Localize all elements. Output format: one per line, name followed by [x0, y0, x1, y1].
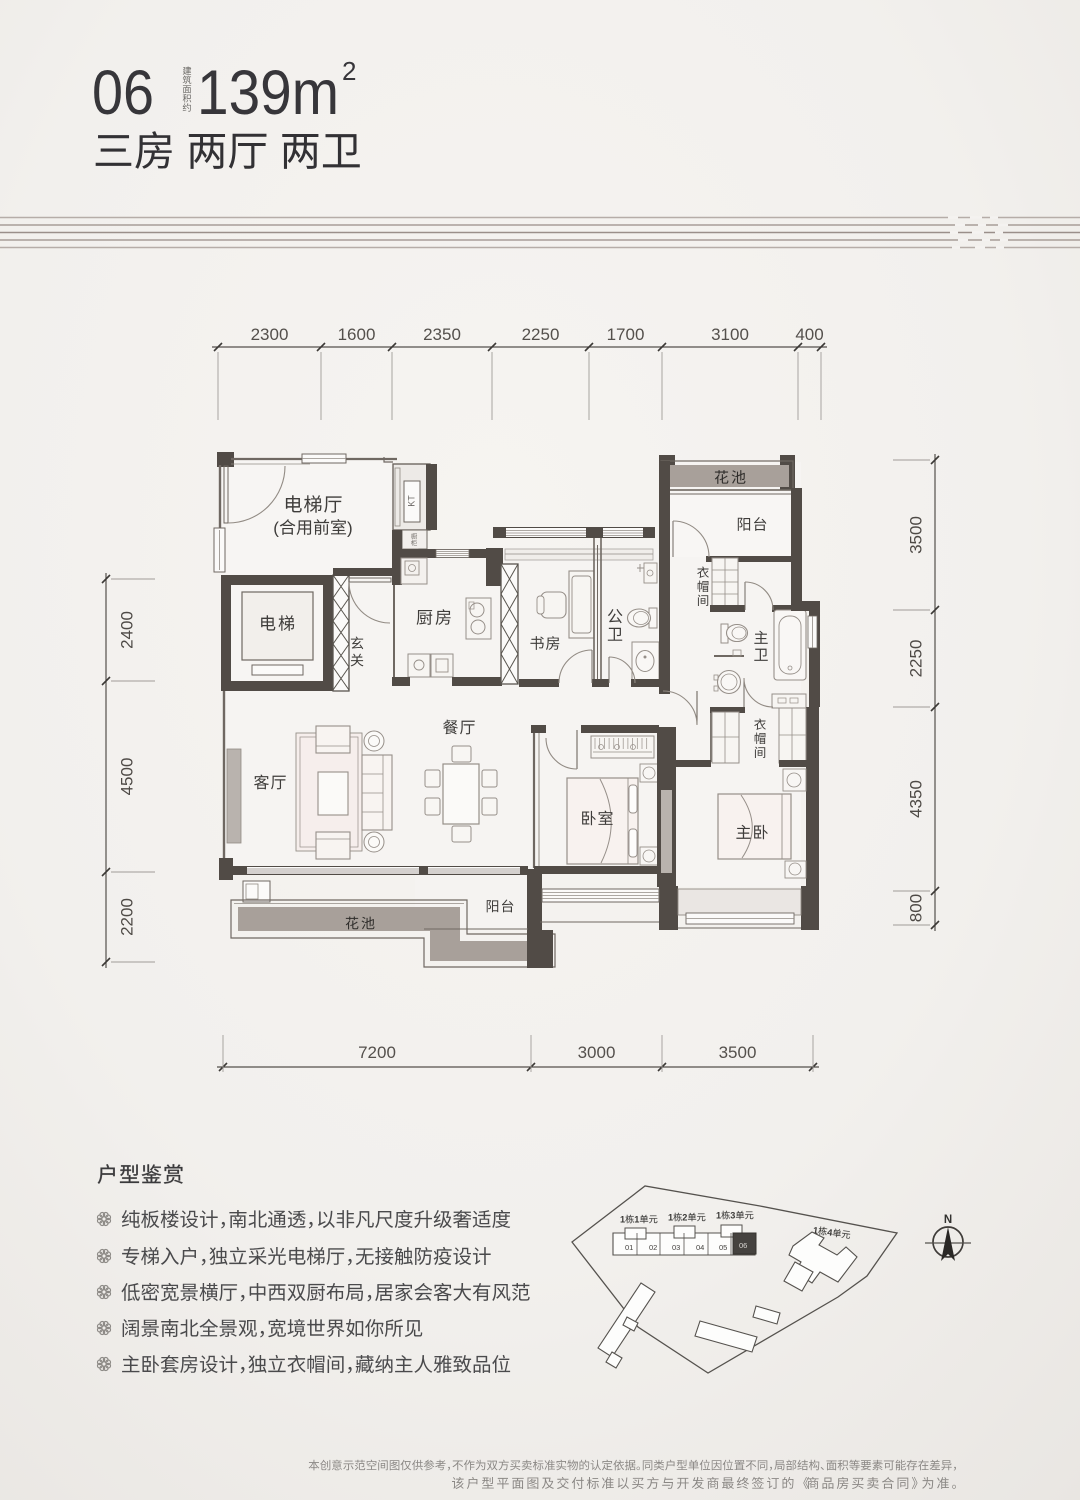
svg-text:1: 1 [716, 1211, 721, 1221]
svg-text:3000: 3000 [578, 1043, 616, 1062]
svg-text:139m: 139m [197, 58, 339, 128]
svg-text:(: ( [273, 519, 279, 538]
svg-text:03: 03 [672, 1243, 680, 1252]
svg-text:800: 800 [906, 894, 925, 922]
svg-text:05: 05 [719, 1243, 727, 1252]
svg-text:3: 3 [730, 1211, 735, 1221]
svg-text:2250: 2250 [906, 640, 925, 678]
svg-text:1: 1 [668, 1213, 673, 1223]
svg-text:3500: 3500 [906, 516, 925, 554]
svg-text:2300: 2300 [251, 325, 289, 344]
svg-text:01: 01 [625, 1243, 633, 1252]
svg-text:4500: 4500 [117, 758, 136, 796]
svg-text:2: 2 [342, 56, 356, 86]
svg-text:2200: 2200 [117, 898, 136, 936]
svg-text:02: 02 [649, 1243, 657, 1252]
svg-text:1: 1 [620, 1215, 625, 1225]
svg-text:2250: 2250 [522, 325, 560, 344]
svg-text:KT: KT [406, 495, 416, 507]
svg-text:7200: 7200 [358, 1043, 396, 1062]
svg-text:2350: 2350 [423, 325, 461, 344]
svg-text:1600: 1600 [338, 325, 376, 344]
svg-text:1700: 1700 [607, 325, 645, 344]
svg-text:400: 400 [795, 325, 823, 344]
svg-text:4350: 4350 [906, 780, 925, 818]
svg-text:): ) [347, 519, 353, 538]
svg-text:04: 04 [696, 1243, 704, 1252]
svg-text:3500: 3500 [719, 1043, 757, 1062]
svg-text:06: 06 [92, 58, 154, 128]
svg-text:06: 06 [739, 1241, 747, 1250]
svg-text:3100: 3100 [711, 325, 749, 344]
svg-text:1: 1 [634, 1215, 639, 1225]
svg-text:2: 2 [682, 1213, 687, 1223]
svg-text:2400: 2400 [117, 611, 136, 649]
svg-text:N: N [944, 1214, 952, 1226]
